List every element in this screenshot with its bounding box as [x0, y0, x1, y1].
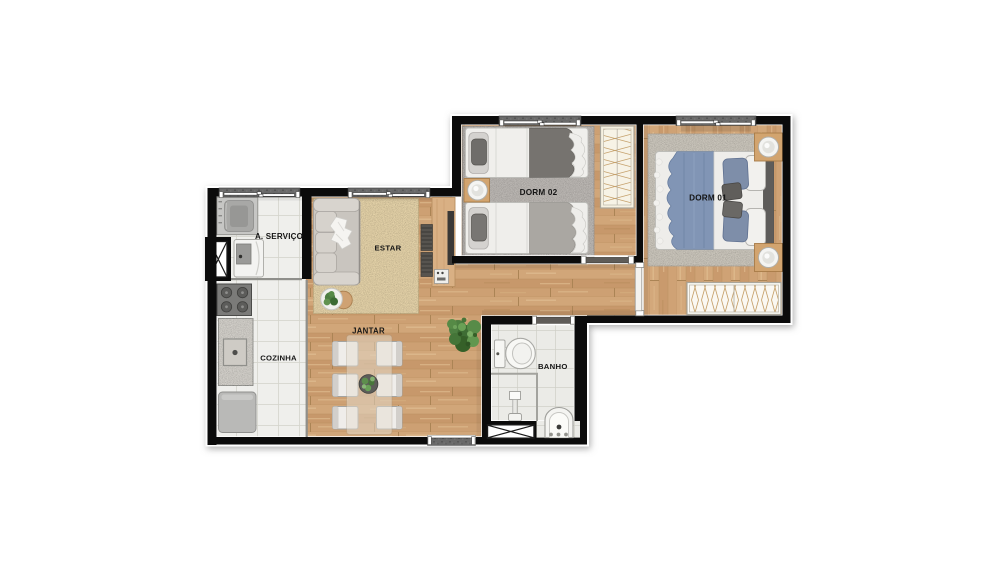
svg-text:ESTAR: ESTAR [375, 244, 402, 253]
svg-text:DORM 01: DORM 01 [689, 194, 727, 203]
svg-text:JANTAR: JANTAR [352, 327, 385, 336]
svg-text:BANHO: BANHO [538, 362, 568, 371]
svg-text:DORM 02: DORM 02 [520, 188, 558, 197]
svg-text:COZINHA: COZINHA [260, 354, 297, 363]
svg-text:A. SERVIÇO: A. SERVIÇO [255, 232, 303, 241]
